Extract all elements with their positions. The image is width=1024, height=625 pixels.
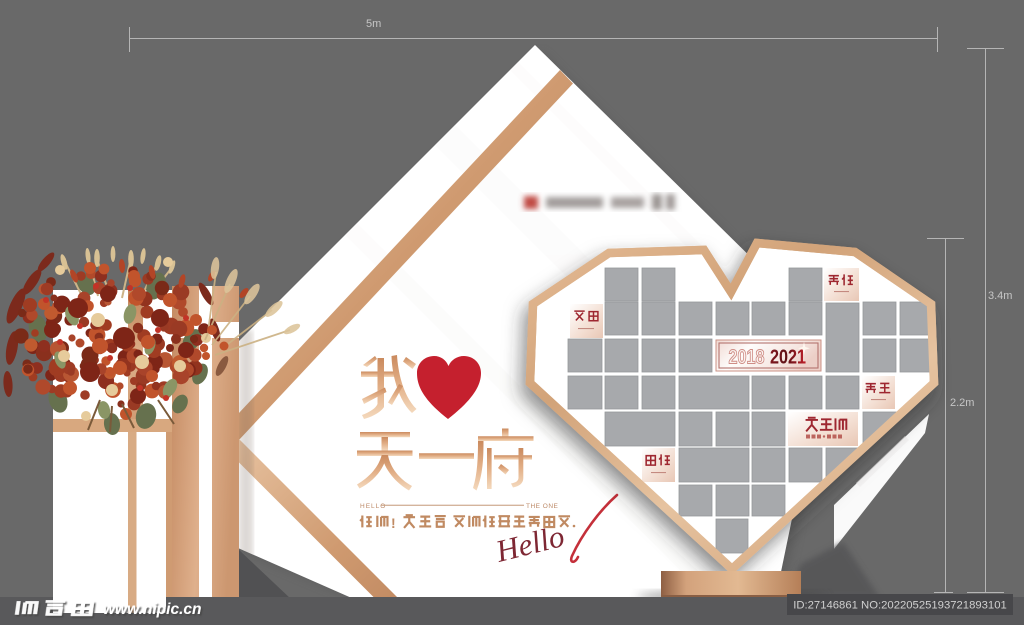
svg-text:5m: 5m	[366, 18, 381, 30]
svg-text:!: !	[391, 515, 396, 531]
svg-text:2.2m: 2.2m	[950, 397, 974, 409]
svg-text:3.4m: 3.4m	[988, 290, 1012, 302]
svg-text:THE ONE: THE ONE	[526, 503, 559, 510]
svg-text:2018: 2018	[729, 344, 765, 367]
svg-text:HELLO: HELLO	[360, 503, 386, 510]
svg-text:ID:27146861 NO:202205251937218: ID:27146861 NO:20220525193721893101	[793, 600, 1007, 612]
svg-text:www.nipic.cn: www.nipic.cn	[103, 601, 201, 618]
